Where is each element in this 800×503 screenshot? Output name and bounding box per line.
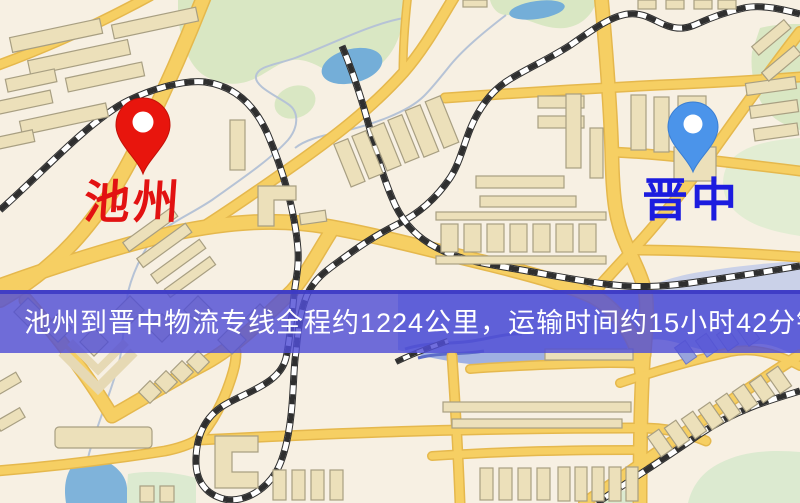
map-viewport[interactable]: 池州 晋中 池州到晋中物流专线全程约1224公里，运输时间约15小时42分钟.: [0, 0, 800, 503]
destination-city-label: 晋中: [642, 177, 740, 223]
route-info-text: 池州到晋中物流专线全程约1224公里，运输时间约15小时42分钟.: [24, 294, 800, 353]
origin-city-label: 池州: [82, 179, 183, 225]
map-canvas[interactable]: [0, 0, 800, 503]
route-info-banner: 池州到晋中物流专线全程约1224公里，运输时间约15小时42分钟.: [0, 290, 800, 353]
